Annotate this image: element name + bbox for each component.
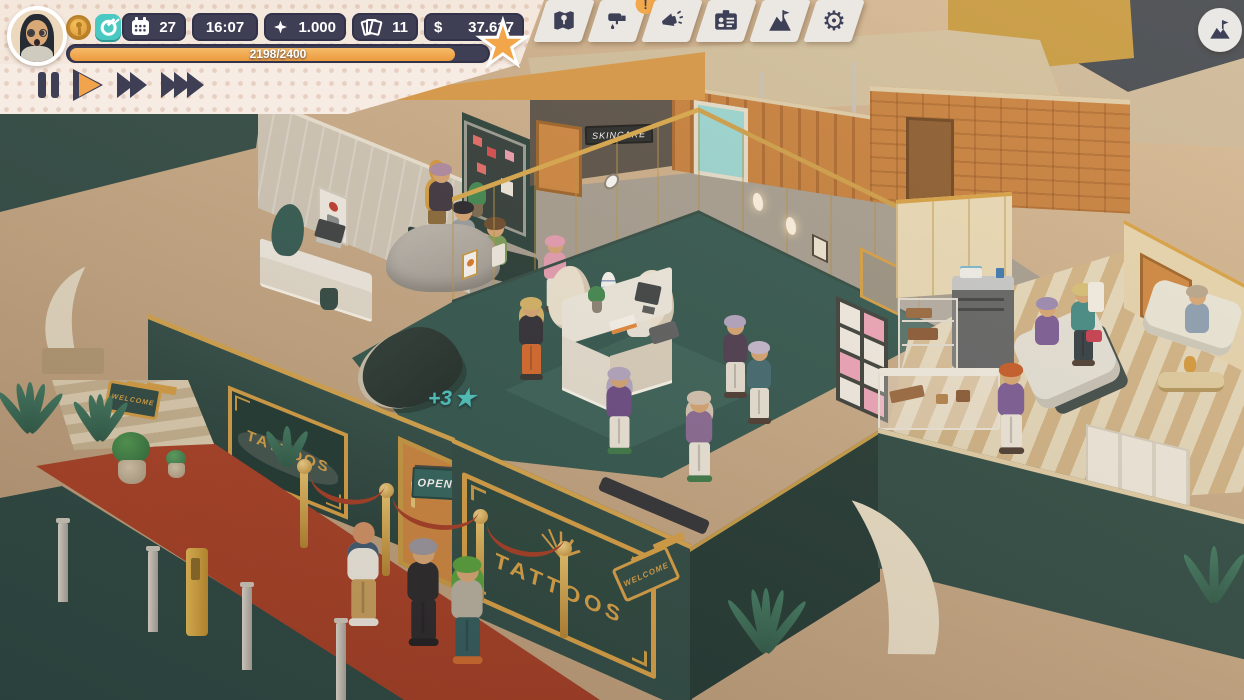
pause-button[interactable]	[38, 72, 59, 98]
spark-icon	[274, 21, 287, 34]
character-customer-walking[interactable]	[683, 394, 716, 478]
stanchion-post	[382, 494, 390, 576]
wall-sconce	[786, 215, 796, 237]
horn-sculpture-small[interactable]	[34, 262, 108, 358]
key-icon	[97, 16, 120, 39]
paint-roller-icon	[605, 8, 631, 34]
tickets-pill[interactable]: 11	[352, 13, 418, 41]
bonus-value: +3	[428, 387, 452, 411]
avatar-mouth	[34, 39, 40, 46]
agave-plant	[1192, 546, 1236, 602]
character-customer-blonde[interactable]	[516, 300, 546, 376]
xp-star-icon: ★	[476, 14, 530, 74]
goals-button[interactable]	[749, 0, 811, 42]
brown-door[interactable]	[906, 117, 954, 208]
display-shelf[interactable]	[898, 298, 958, 370]
character-walkin-bald[interactable]	[344, 522, 383, 621]
open-sign-label: OPEN	[417, 477, 453, 491]
fence-post	[148, 550, 158, 632]
agave-plant	[8, 382, 52, 432]
xp-bar: 2198/2400	[66, 44, 490, 63]
hud-stats: 27 16:07 1.000 11 $ 37.617	[122, 13, 524, 41]
map-button[interactable]	[533, 0, 595, 42]
time-pill[interactable]: 16:07	[192, 13, 258, 41]
agave-plant	[80, 394, 120, 440]
play-button[interactable]	[73, 69, 103, 101]
character-customer-redhair[interactable]	[995, 366, 1028, 450]
character-walkin-gray[interactable]	[404, 542, 443, 641]
fence-post	[58, 522, 68, 602]
wall-sconce	[753, 191, 763, 213]
wall-frame-art	[812, 234, 828, 264]
studio-side-table[interactable]	[1158, 372, 1224, 392]
decorate-button[interactable]: !	[587, 0, 649, 42]
coin-icon[interactable]	[66, 15, 91, 40]
stanchion-post	[560, 552, 568, 638]
player-avatar[interactable]	[7, 6, 67, 66]
staff-button[interactable]	[695, 0, 757, 42]
sanitizer-dispenser	[492, 243, 505, 268]
fast-forward-button[interactable]	[117, 72, 147, 98]
tattoo-workstation[interactable]	[952, 276, 1014, 368]
mountain-flag-icon	[767, 8, 793, 34]
display-case[interactable]	[878, 368, 1000, 430]
roof-railing-post	[852, 62, 856, 117]
map-icon	[551, 8, 577, 34]
agave-plant	[740, 588, 792, 652]
character-tattoo-client[interactable]	[1032, 300, 1062, 345]
key-button[interactable]	[95, 14, 121, 40]
currency-symbol: $	[434, 19, 442, 36]
id-card-icon	[713, 8, 739, 34]
energy-value: 1.000	[298, 19, 336, 36]
bonus-star-icon: ★	[454, 384, 476, 413]
character-customer-backpack[interactable]	[744, 344, 774, 420]
desk-plant	[588, 286, 605, 316]
top-toolbar: ! ⚙	[540, 0, 858, 42]
settings-button[interactable]: ⚙	[803, 0, 865, 42]
game-viewport: SKINCARE +3 ★	[0, 0, 1244, 700]
fastest-forward-button[interactable]	[161, 72, 204, 98]
stanchion-post	[300, 470, 308, 548]
bonus-float: +3 ★	[428, 384, 475, 413]
tickets-value: 11	[392, 19, 408, 36]
speed-controls	[38, 68, 204, 102]
fence-post	[336, 622, 346, 700]
character-walkin-green[interactable]	[448, 560, 487, 659]
fence-post	[242, 586, 252, 670]
mountain-flag-icon	[1207, 17, 1233, 43]
xp-label: 2198/2400	[68, 47, 488, 61]
time-value: 16:07	[206, 19, 244, 36]
energy-pill[interactable]: 1.000	[264, 13, 346, 41]
avatar-glasses	[27, 29, 35, 37]
wall-clock	[604, 171, 619, 191]
horn-sculpture-large[interactable]	[813, 482, 961, 675]
day-value: 27	[159, 19, 176, 36]
trash-bin[interactable]	[320, 288, 338, 310]
welcome-sign-right-label: WELCOME	[622, 560, 670, 588]
gear-icon: ⚙	[822, 8, 846, 35]
day-pill[interactable]: 27	[122, 13, 186, 41]
calendar-icon	[132, 20, 149, 35]
character-customer-purple[interactable]	[603, 370, 635, 450]
avatar-glasses-right	[39, 29, 47, 37]
avatar-shirt	[21, 46, 53, 66]
milestone-button[interactable]	[1198, 8, 1242, 52]
tickets-icon	[362, 19, 382, 35]
wall-frame-art	[462, 249, 478, 281]
character-client-two[interactable]	[1182, 288, 1212, 333]
sculpture-pedestal	[42, 348, 104, 374]
artist-hip-bag	[1086, 330, 1102, 342]
wall-dispenser	[1088, 282, 1104, 312]
megaphone-icon	[659, 8, 685, 34]
yellow-bollard	[186, 548, 208, 636]
